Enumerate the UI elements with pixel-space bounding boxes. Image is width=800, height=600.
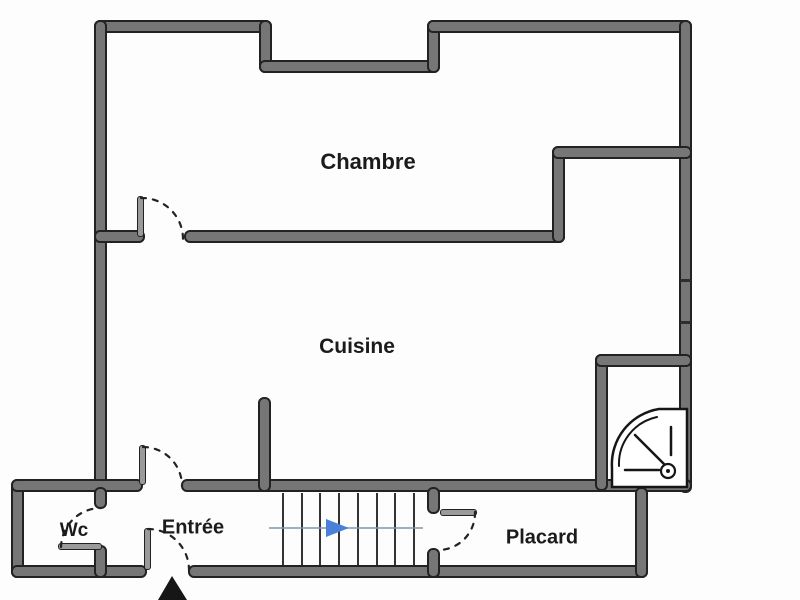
cuisine-door-arc	[143, 447, 182, 486]
placard-door-arc	[439, 512, 475, 550]
chambre-door-leaf	[137, 196, 144, 237]
wall-shower-top	[595, 354, 692, 367]
wall-bottom-a	[11, 565, 147, 578]
wall-stairwell	[258, 397, 271, 492]
wall-chambre-right	[552, 146, 565, 243]
room-label-cuisine: Cuisine	[319, 335, 395, 359]
wall-alcove-top	[552, 146, 692, 159]
wall-strip-left	[11, 479, 24, 578]
wall-notch-bottom	[259, 60, 440, 73]
placard-door-leaf	[440, 509, 477, 516]
shower-icon	[612, 409, 687, 487]
wall-joint	[680, 279, 691, 282]
staircase	[283, 493, 414, 565]
chambre-door-arc	[141, 198, 183, 239]
wc-door-leaf	[58, 543, 102, 550]
wall-wc-jamb-top	[94, 487, 107, 509]
wall-strip-top-a	[11, 479, 143, 492]
room-label-chambre: Chambre	[320, 149, 415, 175]
wall-chambre-bottom-b	[184, 230, 565, 243]
wall-right	[679, 20, 692, 493]
room-label-placard: Placard	[506, 527, 578, 550]
floor-plan: Chambre Cuisine Entrée Wc Placard	[0, 0, 800, 600]
wall-placard-jamb-bottom	[427, 548, 440, 578]
wall-left	[94, 20, 107, 493]
wall-top-left	[94, 20, 272, 33]
cuisine-door-leaf	[139, 445, 146, 485]
entrance-door-leaf	[144, 528, 151, 570]
wall-placard-right	[635, 487, 648, 578]
wall-joint	[680, 321, 691, 324]
room-label-wc: Wc	[60, 520, 89, 542]
wall-placard-jamb-top	[427, 487, 440, 514]
wall-shower-left	[595, 354, 608, 491]
stairs-direction-arrow-icon	[326, 519, 349, 537]
room-label-entree: Entrée	[162, 517, 224, 540]
wall-bottom-b	[188, 565, 648, 578]
entrance-arrow-icon	[158, 576, 187, 600]
wall-top-right	[427, 20, 692, 33]
